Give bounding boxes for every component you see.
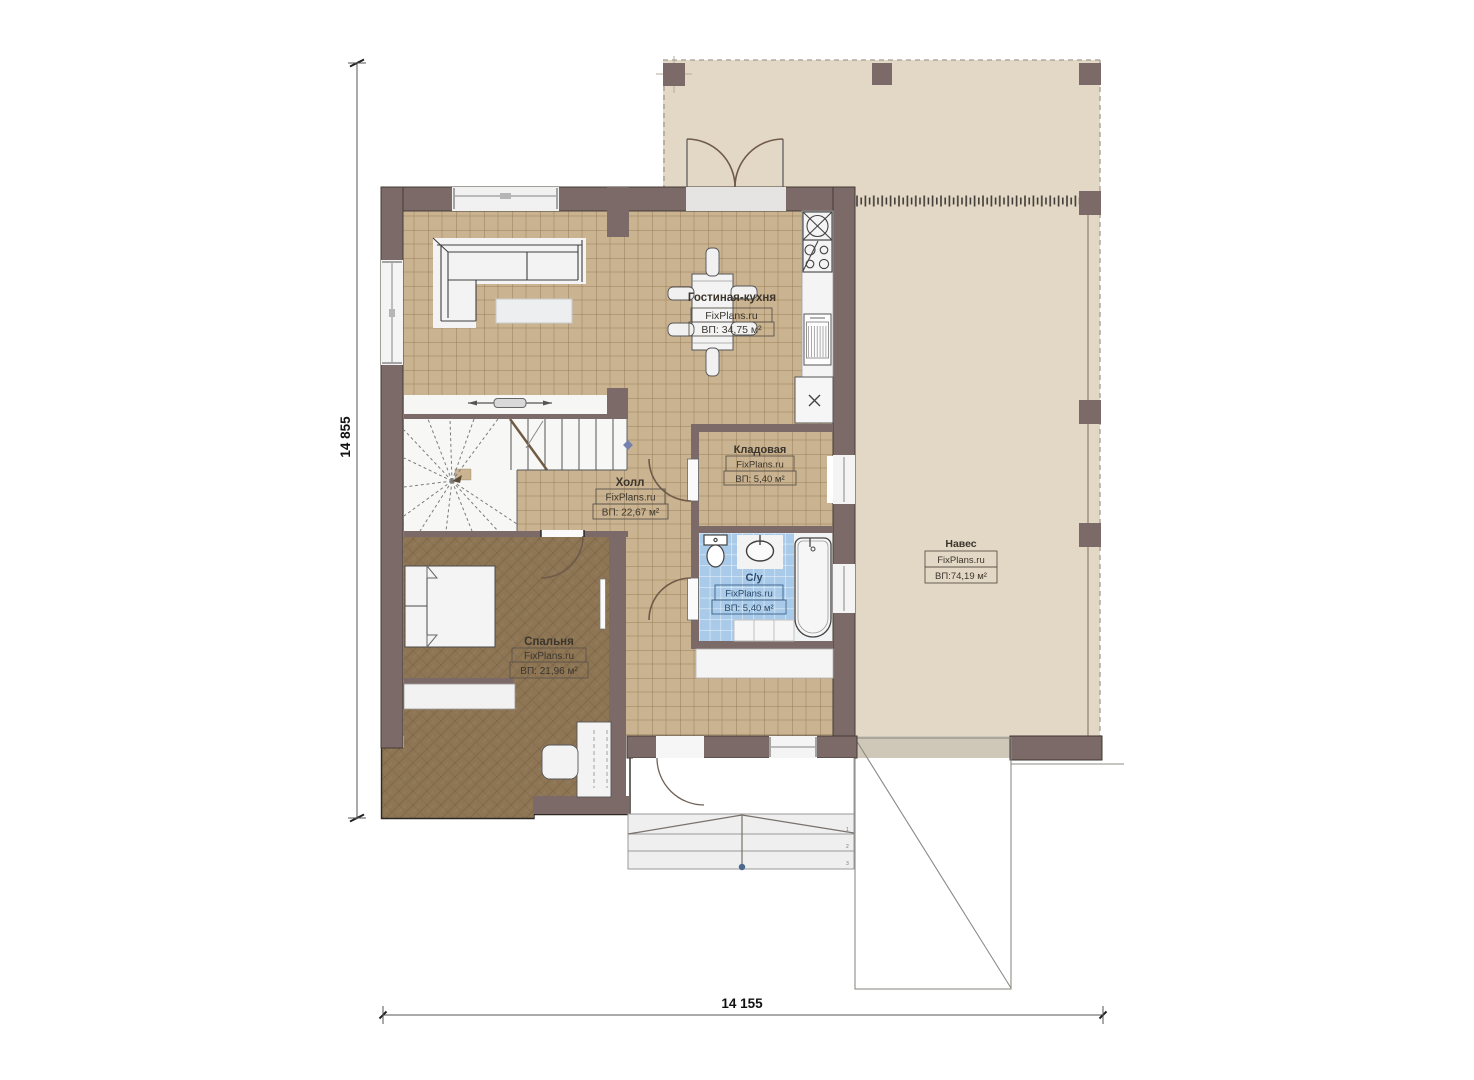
- svg-text:ВП: 22,67 м²: ВП: 22,67 м²: [602, 508, 660, 519]
- svg-text:ВП: 5,40 м²: ВП: 5,40 м²: [735, 474, 784, 485]
- svg-text:2: 2: [846, 844, 849, 850]
- svg-text:14 155: 14 155: [721, 996, 763, 1011]
- svg-text:FixPlans.ru: FixPlans.ru: [725, 589, 773, 600]
- svg-text:FixPlans.ru: FixPlans.ru: [736, 460, 784, 471]
- svg-text:ВП: 21,96 м²: ВП: 21,96 м²: [520, 666, 578, 677]
- svg-text:FixPlans.ru: FixPlans.ru: [937, 555, 985, 566]
- svg-text:ВП:74,19 м²: ВП:74,19 м²: [935, 571, 987, 582]
- svg-text:FixPlans.ru: FixPlans.ru: [524, 651, 574, 662]
- svg-text:Навес: Навес: [945, 538, 976, 550]
- svg-text:ВП: 5,40 м²: ВП: 5,40 м²: [724, 603, 773, 614]
- svg-text:С/у: С/у: [745, 572, 763, 584]
- svg-text:FixPlans.ru: FixPlans.ru: [705, 310, 758, 322]
- svg-text:Холл: Холл: [616, 477, 645, 489]
- svg-text:ВП: 34,75 м²: ВП: 34,75 м²: [701, 324, 762, 336]
- svg-text:14 855: 14 855: [338, 416, 353, 458]
- svg-text:Спальня: Спальня: [524, 636, 574, 648]
- svg-text:Кладовая: Кладовая: [734, 444, 787, 456]
- svg-text:Гостиная-кухня: Гостиная-кухня: [688, 292, 776, 304]
- svg-text:3: 3: [846, 861, 849, 867]
- svg-text:FixPlans.ru: FixPlans.ru: [605, 493, 655, 504]
